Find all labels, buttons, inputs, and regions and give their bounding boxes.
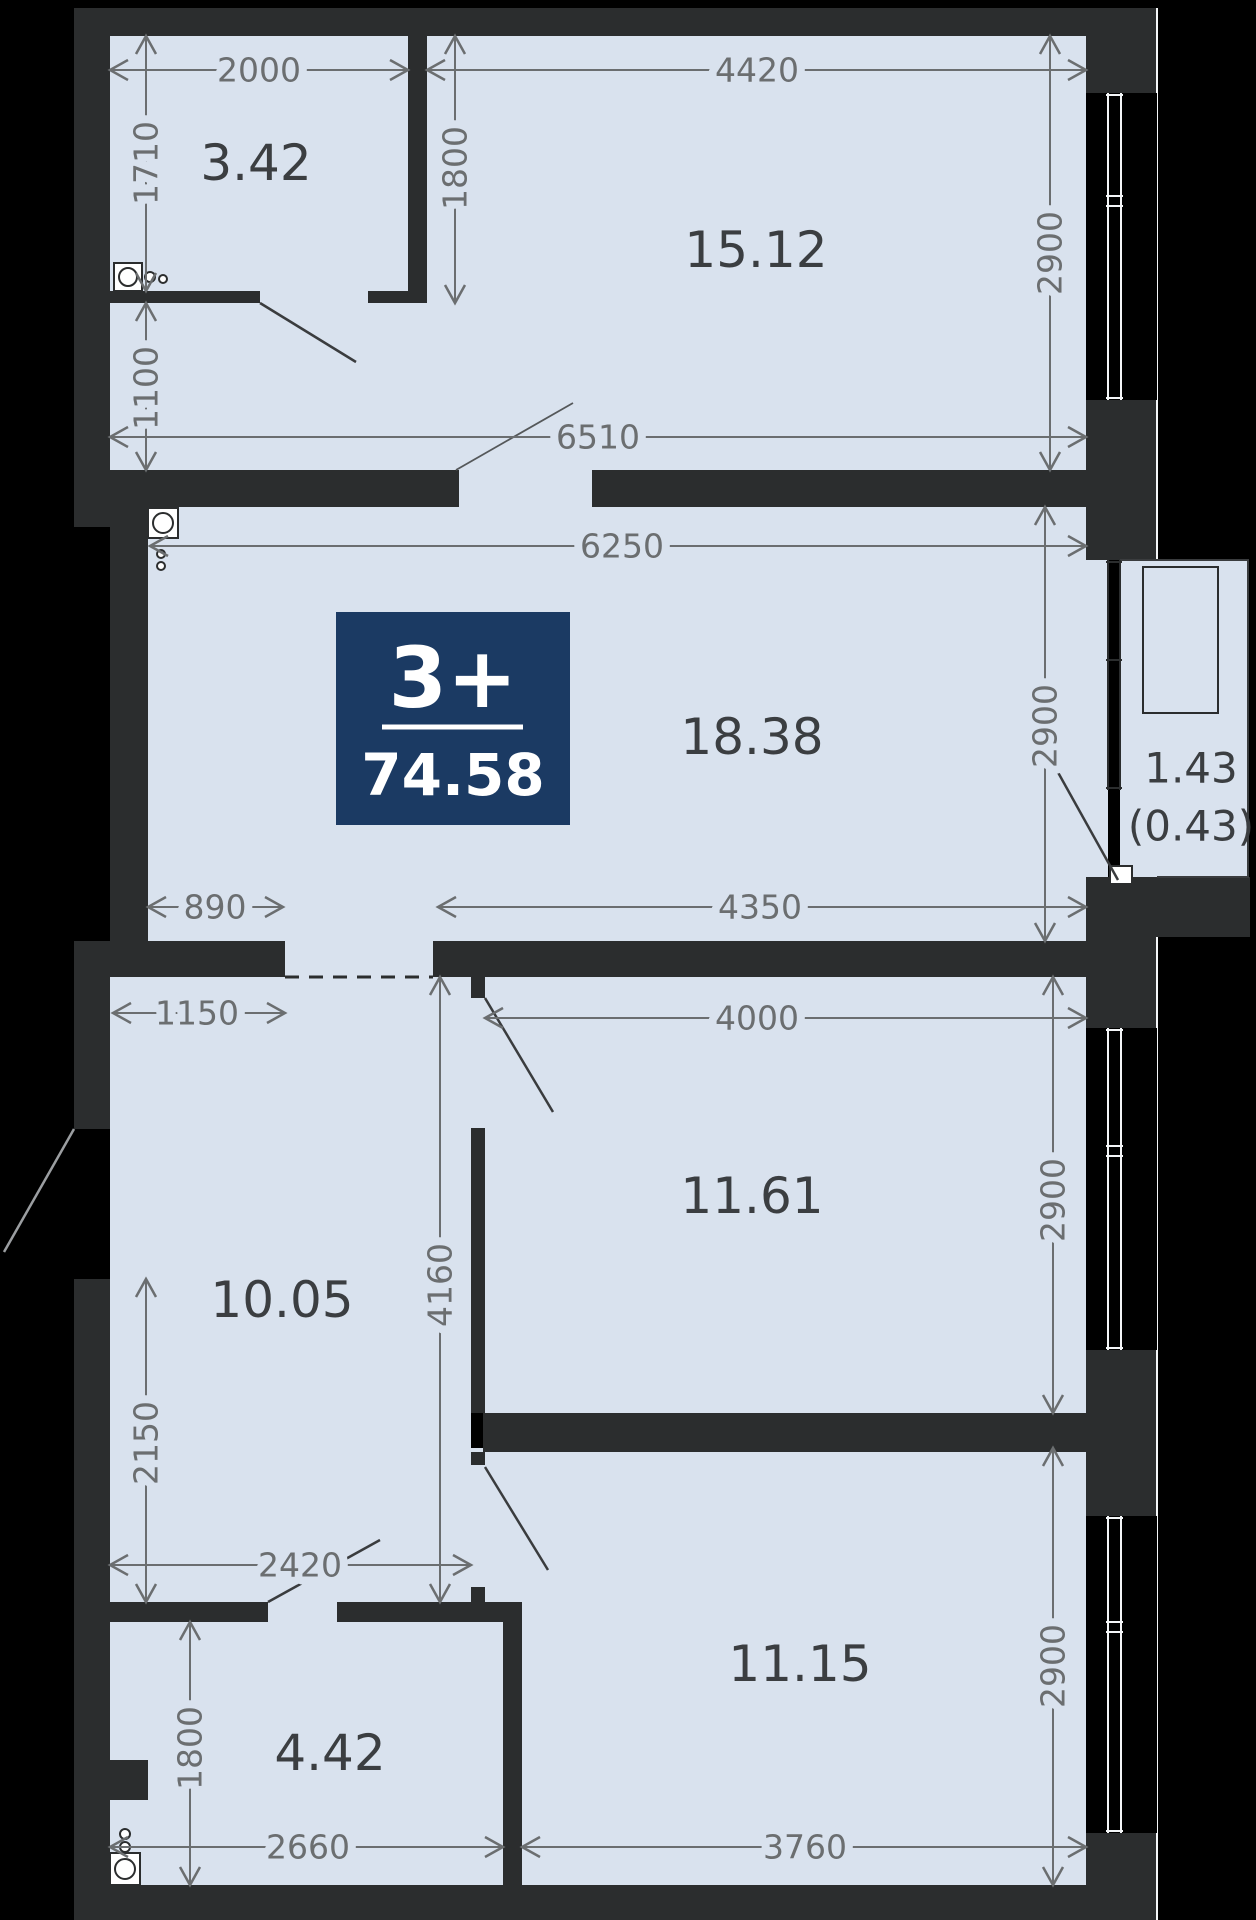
- svg-text:1800: 1800: [436, 126, 475, 210]
- window-kitchen-icon: [1086, 93, 1157, 400]
- svg-text:1100: 1100: [127, 346, 166, 430]
- bathroom-area-label: 3.42: [200, 134, 311, 192]
- entrance-door-leaf: [4, 1129, 74, 1252]
- svg-text:890: 890: [184, 888, 247, 927]
- svg-text:2420: 2420: [258, 1546, 342, 1585]
- svg-text:3760: 3760: [763, 1828, 847, 1867]
- kitchen-area-label: 15.12: [684, 221, 827, 279]
- plumbing-point-icon: [157, 562, 165, 570]
- svg-text:2660: 2660: [266, 1828, 350, 1867]
- balcony-glazing-icon: [1106, 560, 1122, 790]
- hall-area-label: 10.05: [210, 1271, 353, 1329]
- plumbing-point-icon: [157, 550, 165, 558]
- svg-text:2900: 2900: [1034, 1158, 1073, 1242]
- svg-text:2900: 2900: [1031, 211, 1070, 295]
- unit-rooms-count: 3+: [389, 629, 518, 727]
- svg-text:4160: 4160: [421, 1243, 460, 1327]
- svg-text:2900: 2900: [1026, 684, 1065, 768]
- kitchen-sink-icon: [148, 508, 178, 538]
- passage-floor: [285, 941, 433, 977]
- balcony-door-threshold: [1110, 866, 1132, 884]
- bedroom1-area-label: 11.61: [680, 1167, 823, 1225]
- wc-area-label: 4.42: [274, 1724, 385, 1782]
- balcony-door-sill: [1086, 560, 1108, 883]
- living-area-label: 18.38: [680, 708, 823, 766]
- washing-machine-icon: [114, 263, 142, 291]
- svg-text:4350: 4350: [718, 888, 802, 927]
- bedroom2-area-label: 11.15: [728, 1635, 871, 1693]
- window-bedroom2-icon: [1086, 1516, 1157, 1833]
- floor-plan: 1.43 (0.43): [0, 0, 1256, 1920]
- svg-text:4000: 4000: [715, 999, 799, 1038]
- svg-text:2900: 2900: [1034, 1624, 1073, 1708]
- unit-total-area: 74.58: [361, 741, 544, 809]
- window-bedroom1-icon: [1086, 1028, 1157, 1350]
- svg-text:1150: 1150: [155, 994, 239, 1033]
- balcony-area-label: 1.43: [1144, 744, 1238, 793]
- svg-text:1710: 1710: [127, 121, 166, 205]
- svg-text:1800: 1800: [171, 1706, 210, 1790]
- plumbing-point-icon: [120, 1829, 130, 1839]
- unit-badge: 3+ 74.58: [336, 612, 570, 825]
- svg-text:6510: 6510: [556, 418, 640, 457]
- svg-text:2000: 2000: [217, 51, 301, 90]
- balcony-area-reduced-label: (0.43): [1128, 802, 1254, 851]
- wc-door-opening: [268, 1602, 337, 1622]
- plumbing-point-icon: [159, 275, 167, 283]
- svg-text:2150: 2150: [127, 1401, 166, 1485]
- svg-text:4420: 4420: [715, 51, 799, 90]
- svg-text:6250: 6250: [580, 527, 664, 566]
- washing-machine-icon: [110, 1853, 140, 1885]
